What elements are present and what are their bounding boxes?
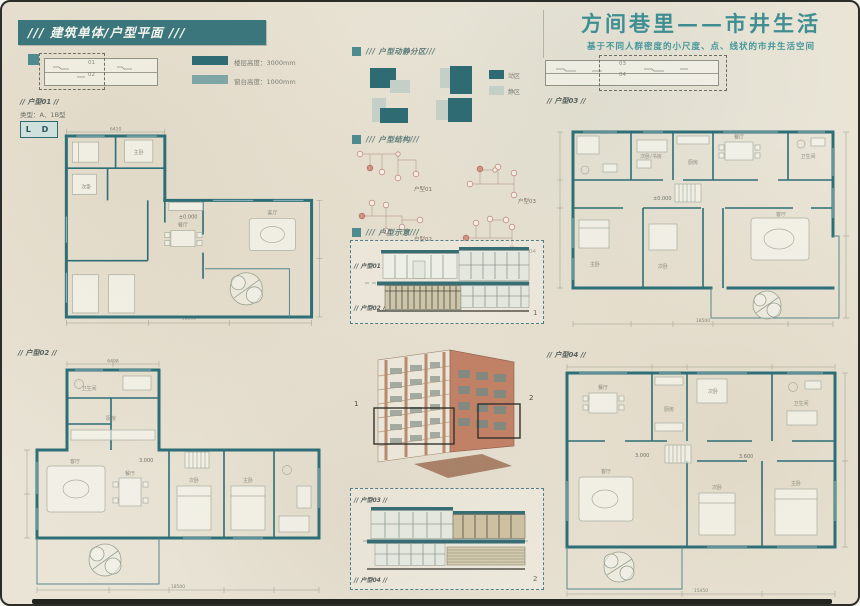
tree-symbol <box>230 273 262 305</box>
poster-board: /// 建筑单体/户型平面 /// 方间巷里——市井生活 基于不同人群密度的小尺… <box>0 0 860 606</box>
svg-text:厨房: 厨房 <box>688 159 698 166</box>
legend-swatch-sill-height <box>192 75 228 84</box>
plan3-level: ±0.000 <box>653 196 672 202</box>
elevation1-index: 1 <box>533 309 537 317</box>
elevation-drawing-2 <box>363 503 531 575</box>
page-title: /// 建筑单体/户型平面 /// <box>18 20 266 45</box>
svg-text:主卧: 主卧 <box>134 149 144 156</box>
axonometric-building <box>362 324 527 484</box>
keyplan-right-highlight <box>599 55 727 91</box>
structure-diagram-1: 户型01 <box>352 146 444 194</box>
plan2-level: 3.000 <box>139 458 153 464</box>
zoning-legend-active-label: 动区 <box>508 71 520 80</box>
structure-bullet-icon <box>352 135 361 144</box>
svg-text:次卧: 次卧 <box>712 484 722 491</box>
zoning-legend-active-swatch <box>489 70 504 79</box>
zoning-title: /// 户型动静分区/// <box>366 46 435 57</box>
svg-text:厨房: 厨房 <box>664 406 674 413</box>
axon-tag-right: 2 <box>529 394 533 402</box>
elevation-drawing-1 <box>365 243 531 319</box>
main-title: 方间巷里——市井生活 <box>548 8 854 38</box>
plan1-label: // 户型01 // <box>20 97 59 107</box>
zoning-legend-quiet-label: 静区 <box>508 87 520 96</box>
svg-text:卫生间: 卫生间 <box>793 400 808 407</box>
structure-diagram-3: 户型03 <box>454 158 546 206</box>
tree-symbol <box>604 552 634 582</box>
zoning-bullet-icon <box>352 47 361 56</box>
floor-plan-01-drawing: 6420 18500 <box>52 126 342 327</box>
schematic-bullet-icon <box>352 228 361 237</box>
svg-text:次卧: 次卧 <box>708 388 718 395</box>
svg-text:餐厅: 餐厅 <box>178 222 188 229</box>
plan3-label: // 户型03 // <box>547 96 586 106</box>
title-block: 方间巷里——市井生活 基于不同人群密度的小尺度、点、线状的市井生活空间 <box>548 8 854 52</box>
svg-text:次卧: 次卧 <box>658 263 668 270</box>
schematic-title: /// 户型示意/// <box>366 227 419 238</box>
svg-text:客厅: 客厅 <box>776 211 786 218</box>
frame-bottom-bar <box>32 599 832 604</box>
subtitle: 基于不同人群密度的小尺度、点、线状的市井生活空间 <box>548 40 854 52</box>
svg-text:厨房: 厨房 <box>106 415 116 422</box>
svg-text:餐厅: 餐厅 <box>125 470 135 477</box>
svg-text:户型01: 户型01 <box>414 185 432 193</box>
svg-text:客厅: 客厅 <box>601 468 611 475</box>
tree-symbol <box>753 291 781 319</box>
plan4-level: 3.000 <box>635 453 649 459</box>
elevation2-bottom-label: // 户型04 // <box>354 575 387 584</box>
svg-text:6420: 6420 <box>110 127 122 133</box>
elevation2-index: 2 <box>533 575 537 583</box>
svg-text:主卧: 主卧 <box>791 480 801 487</box>
zoning-diagram-1-quiet <box>390 80 410 93</box>
plan1-type-note: 类型：A、1B型 <box>20 109 66 119</box>
section-elevation-box-2: // 户型03 // // 户型04 // 2 <box>350 488 544 590</box>
svg-text:18500: 18500 <box>696 318 710 324</box>
svg-text:主卧: 主卧 <box>243 477 253 484</box>
tree-symbol <box>89 544 121 576</box>
svg-text:次卧: 次卧 <box>189 477 199 484</box>
zoning-diagram-4-active <box>448 98 472 122</box>
plan1-level: ±0.000 <box>179 214 198 220</box>
floor-plan-02-drawing: 6498 18500 <box>18 358 345 596</box>
svg-text:主卧: 主卧 <box>590 261 600 268</box>
svg-text:卫生间: 卫生间 <box>81 385 96 392</box>
svg-text:6498: 6498 <box>107 359 119 365</box>
section-elevation-box-1: // 户型01 // // 户型02 // 1 <box>350 240 544 324</box>
svg-text:卫生间: 卫生间 <box>800 153 815 160</box>
svg-text:次卧/书房: 次卧/书房 <box>640 153 662 160</box>
floor-plan-04-drawing: 15450 3.000 3.600 <box>547 360 855 600</box>
title-divider <box>543 10 544 58</box>
legend-swatch-floor-height <box>192 56 228 65</box>
keyplan-left-icon <box>28 54 39 65</box>
svg-text:次卧: 次卧 <box>81 183 91 190</box>
zoning-legend-quiet-swatch <box>489 86 504 95</box>
plan4-label: // 户型04 // <box>547 350 586 360</box>
svg-text:18500: 18500 <box>171 584 185 590</box>
svg-text:餐厅: 餐厅 <box>598 384 608 391</box>
svg-text:15450: 15450 <box>694 588 708 594</box>
legend-label-sill-height: 窗台高度：1000mm <box>234 76 296 86</box>
legend-label-floor-height: 楼层高度：3000mm <box>234 57 296 67</box>
plan4-furniture <box>579 377 821 582</box>
structure-title: /// 户型结构/// <box>366 134 419 145</box>
floor-plan-03-drawing: 18500 ±0.000 次卧/书房 厨房 <box>552 118 854 330</box>
keyplan-left-highlight <box>39 53 105 90</box>
zoning-diagram-3-active <box>380 108 408 123</box>
zoning-diagram-2-active <box>450 66 472 94</box>
plan4-level2: 3.600 <box>739 454 753 460</box>
svg-text:户型03: 户型03 <box>518 197 536 205</box>
plan2-label: // 户型02 // <box>18 348 57 358</box>
axon-tag-left: 1 <box>354 400 358 408</box>
svg-text:餐厅: 餐厅 <box>734 134 744 141</box>
svg-text:客厅: 客厅 <box>267 209 277 216</box>
plan2-furniture <box>47 376 311 576</box>
svg-text:客厅: 客厅 <box>70 458 80 465</box>
